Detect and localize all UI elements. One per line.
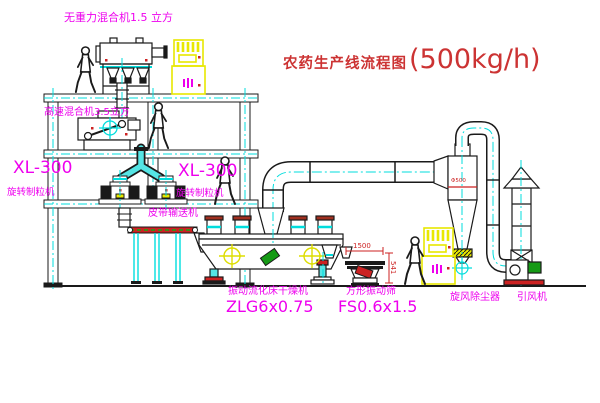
fluid-bed-dryer-machine xyxy=(199,208,352,284)
worker-figure-icon xyxy=(76,47,95,92)
drawing-title: 农药生产线流程图 (500kg/h) xyxy=(283,44,541,75)
label-high-speed-mixer: 高速混合机3.5立方 xyxy=(44,108,130,118)
label-granulator-left-name: 旋转制粒机 xyxy=(7,188,55,198)
label-granulator-right-model: XL-300 xyxy=(178,163,237,180)
draft-fan-machine xyxy=(504,260,544,285)
dimension-cyclone: Φ500 xyxy=(451,179,466,185)
belt-conveyor-machine xyxy=(117,208,213,284)
dimension-sieve-height: 541 xyxy=(389,261,396,274)
control-cabinet-top xyxy=(172,40,205,94)
square-sieve-machine xyxy=(345,247,393,286)
title-capacity: (500kg/h) xyxy=(409,44,541,75)
label-draft-fan: 引风机 xyxy=(517,293,547,303)
label-granulator-right-name: 旋转制粒机 xyxy=(176,189,224,199)
label-sieve-name: 方形振动筛 xyxy=(346,287,396,297)
label-gravity-mixer: 无重力混合机1.5 立方 xyxy=(64,12,173,23)
drawing-canvas: 农药生产线流程图 (500kg/h) 无重力混合机1.5 立方 高速混合机3.5… xyxy=(0,0,600,403)
dimension-sieve-length: 1500 xyxy=(353,243,371,250)
exhaust-duct xyxy=(262,156,448,212)
label-dryer-name: 振动流化床干燥机 xyxy=(228,287,308,297)
label-dryer-model: ZLG6x0.75 xyxy=(226,299,314,315)
label-cyclone: 旋风除尘器 xyxy=(450,293,500,303)
label-granulator-left-model: XL-300 xyxy=(13,160,72,177)
label-belt-conveyor: 皮带输送机 xyxy=(148,209,198,219)
control-cabinet-right xyxy=(422,228,455,284)
label-sieve-model: FS0.6x1.5 xyxy=(338,299,417,315)
title-text: 农药生产线流程图 xyxy=(283,52,407,73)
gravity-mixer-machine xyxy=(96,38,167,94)
